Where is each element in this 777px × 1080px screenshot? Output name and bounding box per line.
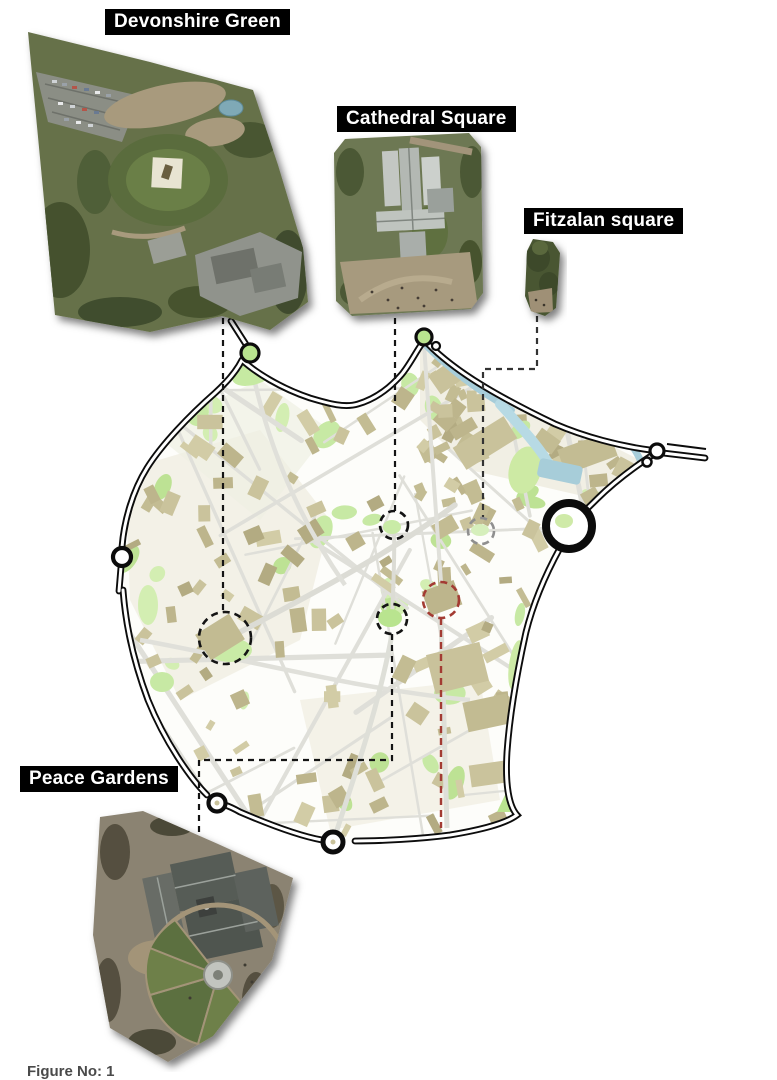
roundabout-north — [416, 329, 432, 345]
roundabout-north-slip — [432, 342, 440, 350]
roundabout-east-slip — [643, 458, 652, 467]
map-building — [438, 404, 453, 418]
label-peace-gardens: Peace Gardens — [20, 766, 178, 792]
roundabout-west — [113, 548, 131, 566]
map-building — [499, 576, 512, 583]
map-building — [589, 473, 608, 487]
roundabout-south-island — [331, 840, 336, 845]
figure-canvas — [0, 0, 777, 1072]
aerial-photo-devonshire-green — [28, 32, 308, 332]
label-cathedral-square: Cathedral Square — [337, 106, 516, 132]
label-devonshire-green: Devonshire Green — [105, 9, 290, 35]
roundabout-park-square-green — [555, 514, 573, 528]
map-building — [275, 641, 285, 658]
roundabout-northwest — [241, 344, 259, 362]
parkway-extra-lane — [667, 444, 706, 449]
roundabout-east-small — [650, 444, 664, 458]
map-building — [166, 606, 177, 623]
map-building — [198, 505, 210, 522]
roundabout-southwest-island — [215, 801, 220, 806]
aerial-photo-fitzalan-square — [525, 239, 560, 316]
map-building — [197, 415, 223, 429]
map-street — [572, 501, 721, 736]
aerial-photo-peace-gardens — [93, 811, 293, 1062]
aerial-photo-cathedral-square — [334, 133, 484, 316]
map-building — [312, 608, 327, 631]
label-fitzalan-square: Fitzalan square — [524, 208, 683, 234]
